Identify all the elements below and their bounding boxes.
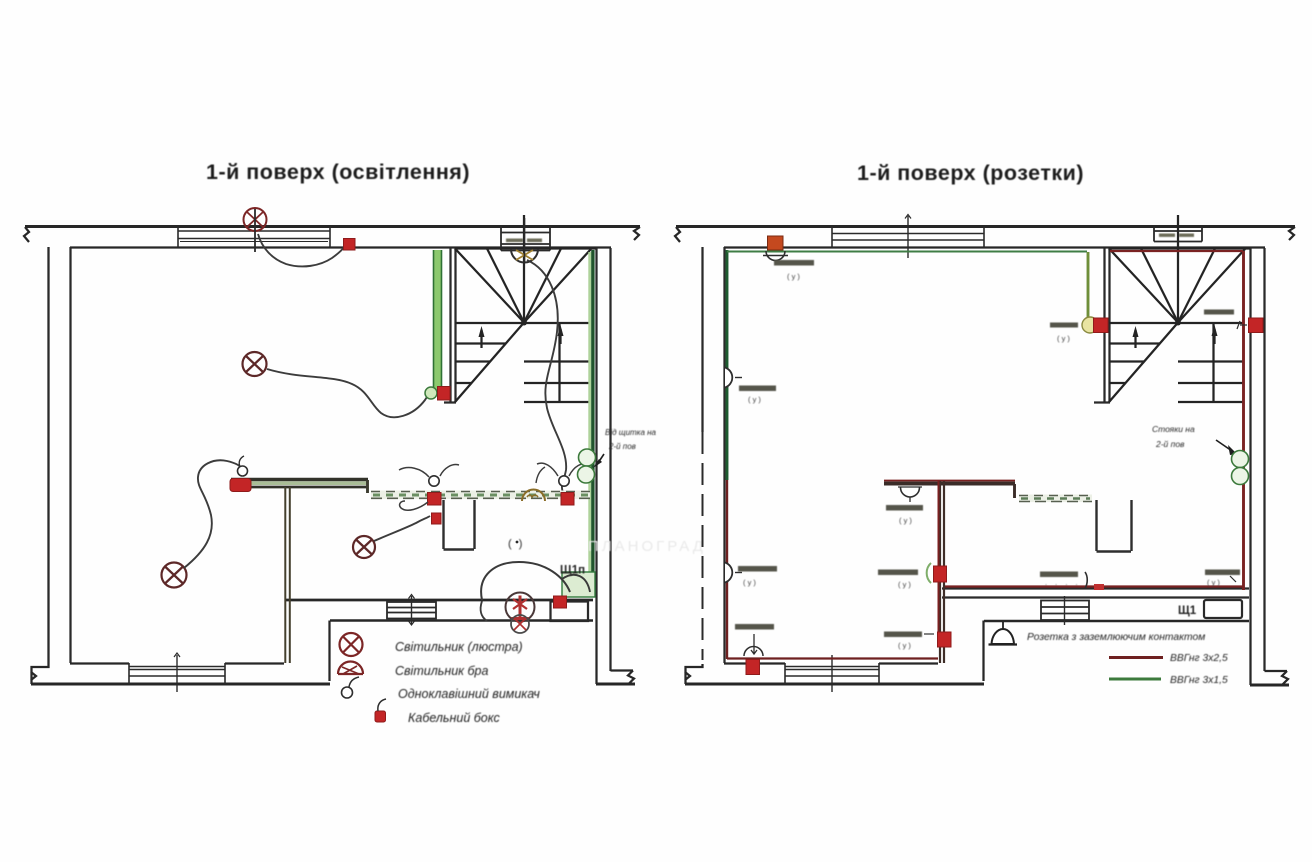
svg-text:2-й пов: 2-й пов — [608, 442, 636, 451]
svg-text:1-й поверх (освітлення): 1-й поверх (освітлення) — [206, 160, 470, 184]
svg-text:Розетка з заземлюючим контакто: Розетка з заземлюючим контактом — [1027, 632, 1205, 643]
svg-text:( ): ( ) — [508, 538, 524, 550]
svg-text:( у ): ( у ) — [899, 516, 912, 525]
svg-text:( у ): ( у ) — [898, 580, 911, 589]
svg-text:( у ): ( у ) — [898, 641, 911, 650]
svg-text:Щ1: Щ1 — [1178, 605, 1197, 617]
svg-text:1-й поверх (розетки): 1-й поверх (розетки) — [857, 161, 1084, 185]
svg-text:( у ): ( у ) — [1207, 578, 1220, 587]
svg-text:Кабельний бокс: Кабельний бокс — [408, 711, 501, 725]
svg-text:( у ): ( у ) — [748, 395, 761, 404]
svg-text:ПЛАНОГРАД: ПЛАНОГРАД — [588, 538, 706, 555]
svg-text:2-й пов: 2-й пов — [1155, 439, 1185, 449]
svg-text:Одноклавішний вимикач: Одноклавішний вимикач — [398, 687, 540, 701]
svg-text:. . . .: . . . . — [1045, 578, 1081, 587]
svg-text:ВВГнг 3х1,5: ВВГнг 3х1,5 — [1170, 675, 1228, 686]
svg-text:Світильник (люстра): Світильник (люстра) — [395, 640, 523, 654]
svg-text:Стояки на: Стояки на — [1152, 424, 1195, 434]
svg-text:Від щитка на: Від щитка на — [605, 428, 657, 437]
svg-text:Світильник бра: Світильник бра — [395, 664, 489, 678]
svg-text:( у ): ( у ) — [787, 272, 800, 281]
svg-text:( у ): ( у ) — [743, 578, 756, 587]
svg-text:ВВГнг 3х2,5: ВВГнг 3х2,5 — [1170, 653, 1228, 664]
svg-text:( у ): ( у ) — [1057, 334, 1070, 343]
